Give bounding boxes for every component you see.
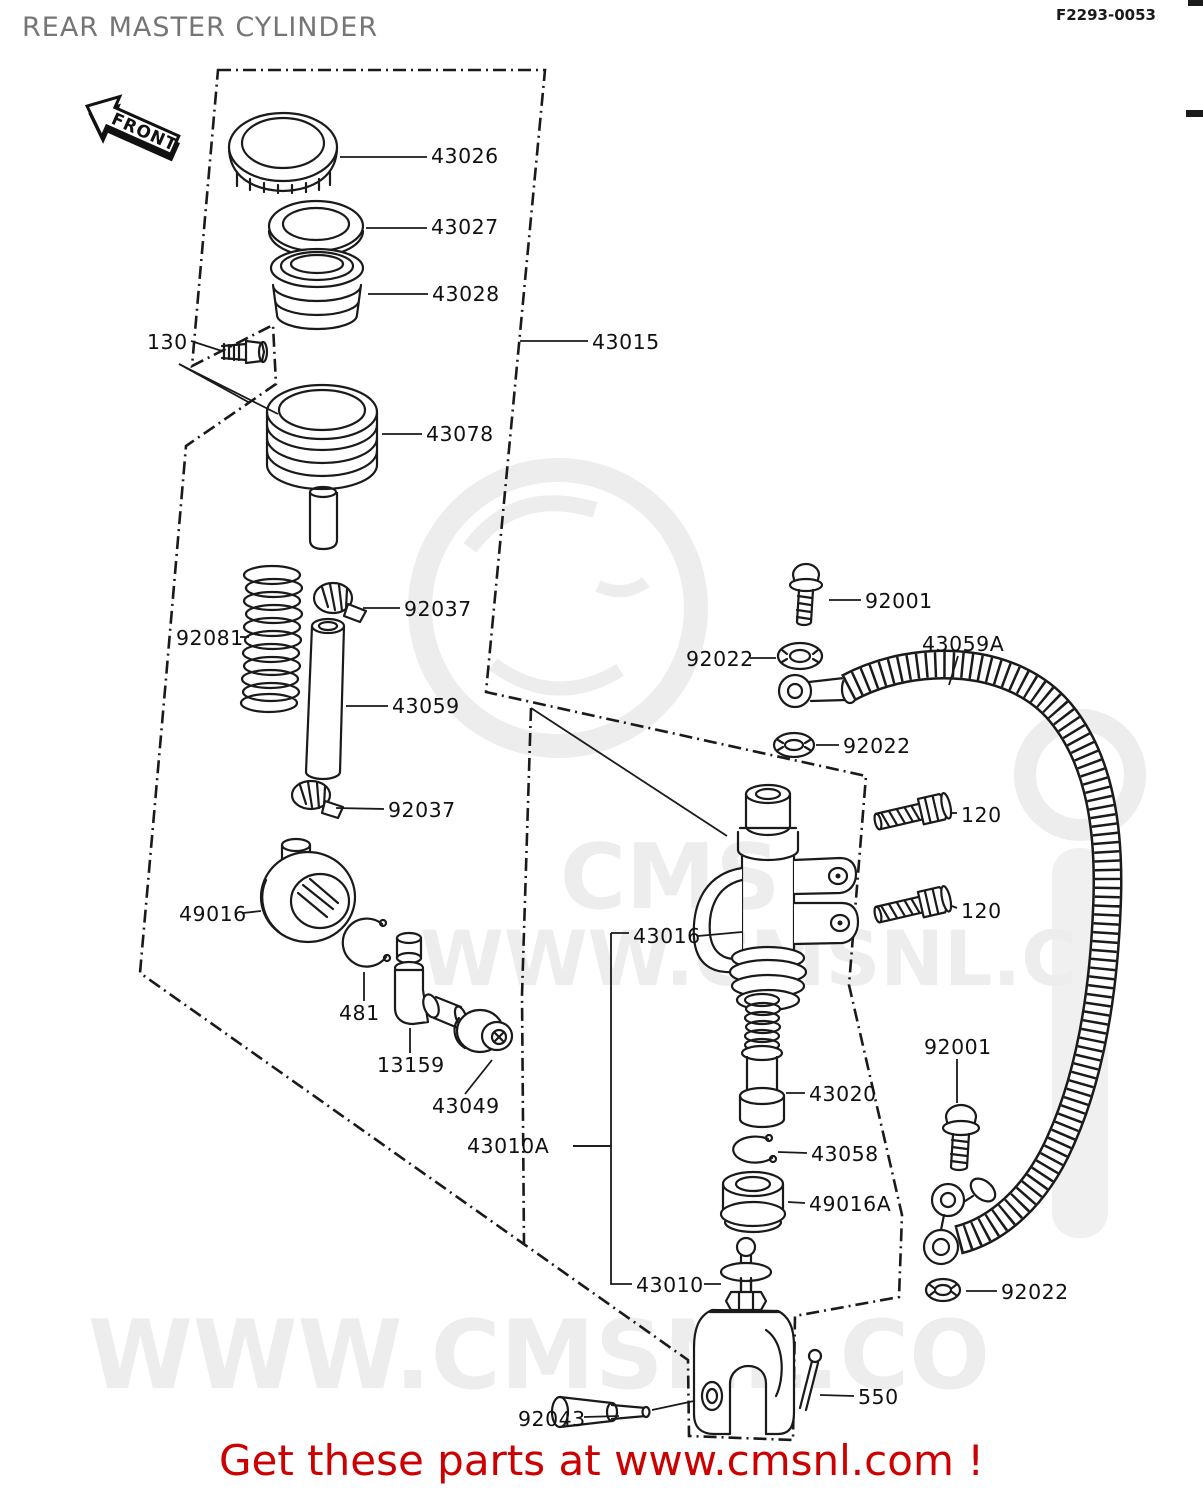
part-92022-washer-b-drawing	[774, 733, 814, 757]
part-label-92022-a[interactable]: 92022	[686, 647, 776, 671]
part-number-text[interactable]: 13159	[377, 1053, 445, 1077]
parts-diagram: CMS WWW.CMSNL.C WWW.CMSNL.CO FRONT	[0, 0, 1203, 1500]
part-number-text[interactable]: 43020	[809, 1082, 877, 1106]
part-92022-washer-c-drawing	[926, 1279, 960, 1301]
part-number-text[interactable]: 43015	[592, 330, 660, 354]
part-481-circlip-drawing	[343, 919, 390, 967]
leader-line	[820, 1395, 854, 1396]
part-43058-clip-drawing	[733, 1135, 776, 1163]
part-label-43015[interactable]: 43015	[520, 330, 660, 354]
part-number-text[interactable]: 92081	[176, 626, 244, 650]
part-92037-clamp-upper-drawing	[314, 583, 366, 622]
watermark-url-bottom: WWW.CMSNL.CO	[88, 1301, 990, 1411]
part-43027-ring-drawing	[269, 201, 363, 256]
part-number-text[interactable]: 43010A	[467, 1134, 549, 1158]
leader-line	[778, 1152, 807, 1153]
leader-line	[179, 364, 278, 414]
part-number-text[interactable]: 130	[147, 330, 188, 354]
leader-line	[465, 1060, 492, 1094]
part-number-text[interactable]: 49016A	[809, 1192, 891, 1216]
part-120-bolt-upper-drawing	[872, 792, 953, 835]
part-43028-diaphragm-drawing	[271, 249, 363, 329]
part-92037-clamp-lower-drawing	[292, 781, 343, 818]
part-label-43058[interactable]: 43058	[778, 1142, 879, 1166]
part-number-text[interactable]: 92001	[865, 589, 933, 613]
part-label-43010[interactable]: 43010	[636, 1273, 721, 1297]
part-number-text[interactable]: 550	[858, 1385, 899, 1409]
part-number-text[interactable]: 43010	[636, 1273, 704, 1297]
part-number-text[interactable]: 43016	[633, 924, 701, 948]
part-number-text[interactable]: 120	[961, 899, 1002, 923]
part-number-text[interactable]: 49016	[179, 902, 247, 926]
banner-link[interactable]: Get these parts at www.cmsnl.com !	[0, 1436, 1203, 1485]
part-label-49016A[interactable]: 49016A	[788, 1192, 891, 1216]
part-number-text[interactable]: 43078	[426, 422, 494, 446]
leader-line	[336, 808, 384, 809]
part-43026-cap-drawing	[229, 113, 337, 193]
part-number-text[interactable]: 43028	[432, 282, 500, 306]
part-label-92001-top[interactable]: 92001	[829, 589, 933, 613]
part-number-text[interactable]: 92001	[924, 1035, 992, 1059]
part-number-text[interactable]: 92037	[388, 798, 456, 822]
part-label-481[interactable]: 481	[339, 972, 380, 1025]
part-label-92001-right[interactable]: 92001	[924, 1035, 992, 1103]
part-92022-washer-a-drawing	[778, 643, 822, 669]
part-label-92037-lower[interactable]: 92037	[336, 798, 456, 822]
part-label-92022-b[interactable]: 92022	[816, 734, 911, 758]
leader-line	[191, 341, 222, 351]
part-number-text[interactable]: 43027	[431, 215, 499, 239]
part-label-43059[interactable]: 43059	[346, 694, 460, 718]
part-number-text[interactable]: 92043	[518, 1407, 586, 1431]
part-number-text[interactable]: 43058	[811, 1142, 879, 1166]
part-label-43026[interactable]: 43026	[340, 144, 499, 168]
part-49016-cap-drawing	[261, 839, 355, 942]
part-number-text[interactable]: 92022	[1001, 1280, 1069, 1304]
part-43059-tube-drawing	[306, 619, 344, 779]
part-92081-spring-drawing	[241, 566, 302, 712]
part-43049-grommet-drawing	[455, 1010, 512, 1052]
part-label-43078[interactable]: 43078	[382, 422, 494, 446]
part-label-43010A[interactable]: 43010A	[467, 1134, 611, 1158]
page-edge-mark	[1188, 0, 1203, 6]
part-number-text[interactable]: 43059	[392, 694, 460, 718]
part-label-43020[interactable]: 43020	[786, 1082, 877, 1106]
part-number-text[interactable]: 481	[339, 1001, 380, 1025]
part-49016a-boot-drawing	[721, 1172, 785, 1232]
part-label-120-upper[interactable]: 120	[950, 803, 1002, 827]
part-number-text[interactable]: 43026	[431, 144, 499, 168]
part-label-43028[interactable]: 43028	[368, 282, 500, 306]
part-number-text[interactable]: 120	[961, 803, 1002, 827]
part-number-text[interactable]: 43059A	[922, 632, 1004, 656]
leader-line	[788, 1202, 805, 1203]
part-92001-bolt-right-drawing	[943, 1105, 979, 1170]
part-number-text[interactable]: 92022	[686, 647, 754, 671]
part-number-text[interactable]: 92037	[404, 597, 472, 621]
part-92001-bolt-top-drawing	[790, 564, 822, 625]
front-direction-arrow: FRONT	[76, 86, 188, 172]
part-43078-reservoir-drawing	[267, 385, 377, 549]
leader-line	[584, 1416, 619, 1417]
part-label-13159[interactable]: 13159	[377, 1028, 445, 1077]
part-number-text[interactable]: 43049	[432, 1094, 500, 1118]
part-label-92037-upper[interactable]: 92037	[363, 597, 472, 621]
part-number-text[interactable]: 92022	[843, 734, 911, 758]
parts-fiche-page: REAR MASTER CYLINDER F2293-0053 CMS WWW.…	[0, 0, 1203, 1500]
part-label-92081[interactable]: 92081	[176, 626, 249, 650]
leader-line	[952, 906, 957, 908]
part-label-43027[interactable]: 43027	[366, 215, 499, 239]
page-edge-mark	[1186, 110, 1203, 117]
part-label-49016[interactable]: 49016	[179, 902, 261, 926]
part-130-bolt-drawing	[222, 341, 267, 363]
part-43020-piston-drawing	[740, 994, 784, 1127]
